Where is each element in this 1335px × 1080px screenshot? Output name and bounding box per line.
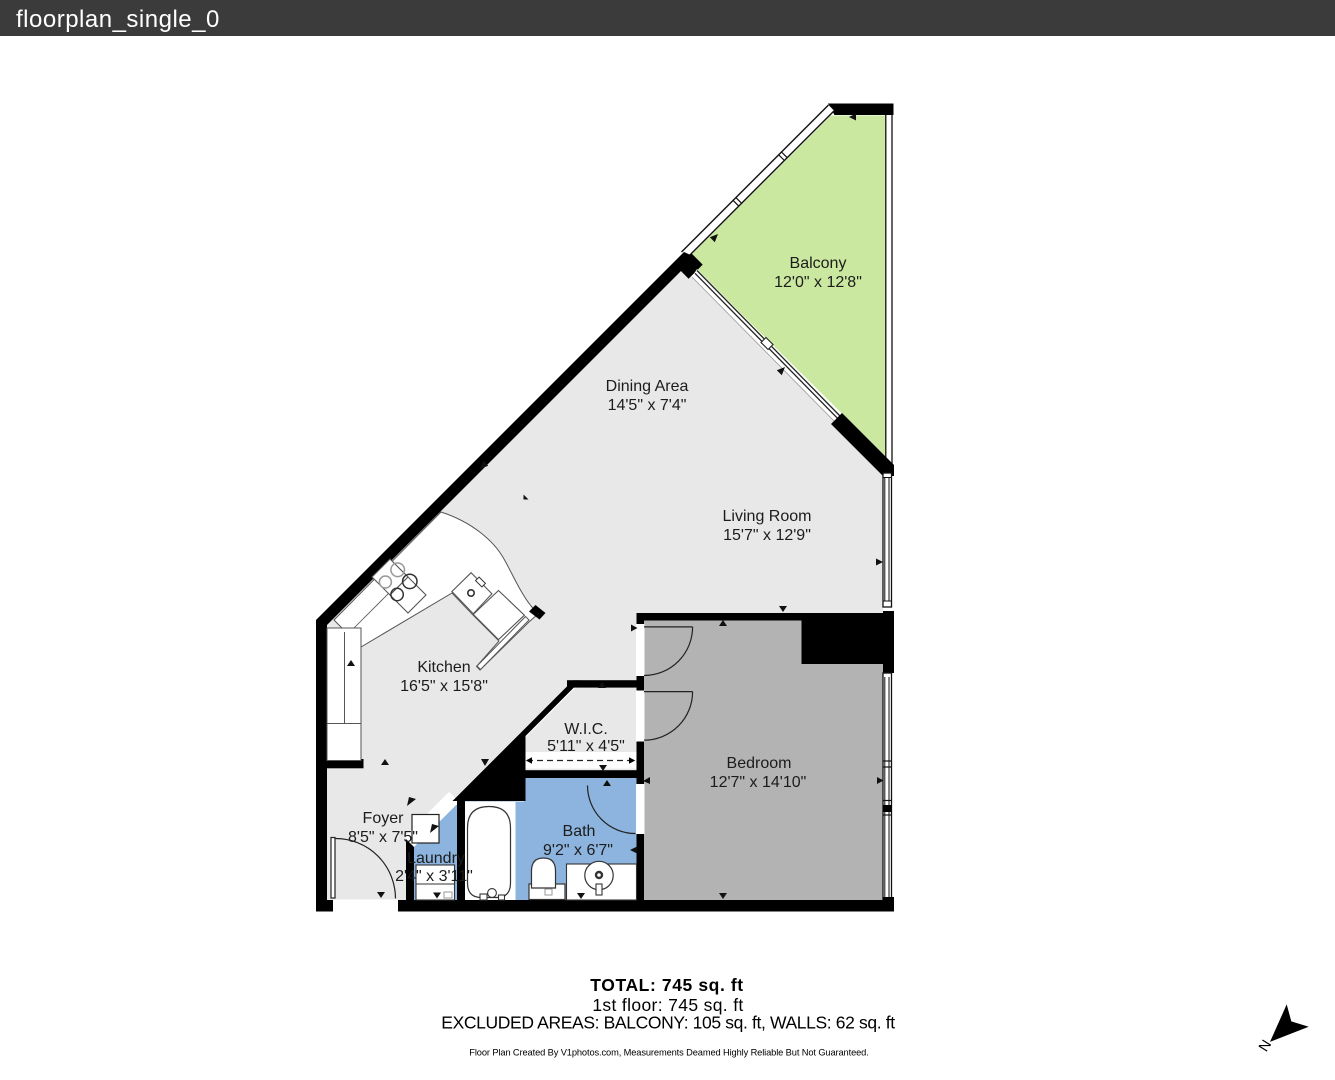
- svg-text:14'5" x 7'4": 14'5" x 7'4": [608, 397, 687, 414]
- svg-text:Foyer: Foyer: [363, 810, 405, 827]
- svg-text:Bedroom: Bedroom: [727, 755, 792, 772]
- svg-text:Living Room: Living Room: [723, 508, 812, 525]
- svg-text:2'4" x 3'11": 2'4" x 3'11": [395, 868, 473, 885]
- svg-text:Kitchen: Kitchen: [417, 659, 470, 676]
- svg-text:16'5" x 15'8": 16'5" x 15'8": [400, 678, 488, 695]
- svg-text:floorplan_single_0: floorplan_single_0: [16, 6, 220, 33]
- svg-text:12'7" x 14'10": 12'7" x 14'10": [710, 774, 807, 791]
- svg-text:Laundry: Laundry: [407, 850, 465, 867]
- svg-text:TOTAL: 745 sq. ft: TOTAL: 745 sq. ft: [590, 975, 743, 995]
- svg-text:Dining Area: Dining Area: [606, 378, 689, 395]
- svg-text:W.I.C.: W.I.C.: [564, 721, 608, 738]
- svg-text:Floor Plan Created By V1photos: Floor Plan Created By V1photos.com, Meas…: [469, 1048, 868, 1058]
- svg-text:9'2" x 6'7": 9'2" x 6'7": [543, 842, 613, 859]
- svg-text:EXCLUDED AREAS: BALCONY: 105 s: EXCLUDED AREAS: BALCONY: 105 sq. ft, WAL…: [441, 1013, 895, 1033]
- svg-text:12'0" x 12'8": 12'0" x 12'8": [774, 274, 862, 291]
- svg-text:8'5" x 7'5": 8'5" x 7'5": [348, 829, 418, 846]
- svg-text:15'7" x 12'9": 15'7" x 12'9": [723, 527, 811, 544]
- svg-text:Bath: Bath: [563, 823, 596, 840]
- svg-text:5'11" x 4'5": 5'11" x 4'5": [547, 738, 625, 755]
- svg-text:Balcony: Balcony: [790, 255, 847, 272]
